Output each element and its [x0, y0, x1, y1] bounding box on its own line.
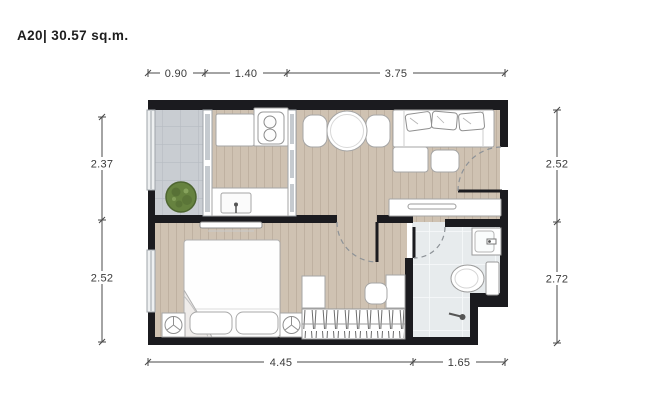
bed-pillow	[236, 312, 278, 334]
dim-label: 2.72	[546, 274, 569, 286]
sofa-pillow	[431, 111, 457, 130]
dim-left: 2.37 2.52	[86, 114, 119, 345]
burner	[264, 129, 276, 141]
dim-label: 2.52	[546, 159, 569, 171]
dim-right: 2.52 2.72	[541, 107, 574, 346]
console-table	[389, 199, 501, 216]
kitchen-cabinet	[216, 114, 254, 146]
basin	[472, 228, 501, 255]
dim-label: 2.37	[91, 159, 114, 171]
bed	[184, 240, 280, 337]
wardrobe-hangers	[302, 309, 405, 339]
balcony-sliding-door	[203, 110, 212, 216]
wall-notch-vertical	[470, 307, 478, 338]
dim-label: 4.45	[270, 357, 293, 369]
toilet	[451, 262, 499, 295]
dim-top: 0.90 1.40 3.75	[145, 66, 508, 80]
dim-label: 1.65	[448, 357, 471, 369]
stove	[254, 108, 288, 146]
bedroom-window	[147, 250, 155, 312]
dim-label: 2.52	[91, 273, 114, 285]
wall-top	[148, 100, 505, 110]
plant	[166, 182, 196, 212]
kitchen-sink-counter	[212, 188, 288, 216]
wall-bathroom-north	[445, 219, 508, 227]
bed-pillow	[190, 312, 232, 334]
dining-table	[327, 111, 367, 151]
side-table	[431, 150, 459, 172]
dim-bottom: 4.45 1.65	[145, 355, 508, 369]
nightstand-left	[162, 313, 185, 337]
floorplan-drawing: 0.90 1.40 3.75 4.45 1.65 2.3	[0, 0, 660, 400]
nightstand-right	[280, 313, 303, 337]
kitchen-glass-partition	[288, 110, 296, 216]
unit-title: A20| 30.57 sq.m.	[17, 28, 129, 43]
dining-chair-left	[303, 115, 327, 147]
dim-label: 1.40	[235, 68, 258, 80]
wall-bathroom-west	[405, 258, 413, 338]
desk-chair	[365, 283, 387, 304]
burner	[264, 116, 276, 128]
sofa-pillow	[458, 112, 484, 131]
ottoman	[393, 147, 428, 172]
sofa	[393, 110, 494, 147]
desk	[386, 275, 405, 308]
dim-label: 3.75	[385, 68, 408, 80]
floorplan-page: A20| 30.57 sq.m.	[0, 0, 660, 400]
sofa-pillow	[405, 111, 432, 131]
balcony-window	[147, 110, 155, 190]
dresser-cabinet	[302, 276, 325, 308]
dining-chair-right	[366, 115, 390, 147]
dim-label: 0.90	[165, 68, 188, 80]
wall-right-top	[500, 100, 508, 147]
balcony	[166, 182, 196, 212]
